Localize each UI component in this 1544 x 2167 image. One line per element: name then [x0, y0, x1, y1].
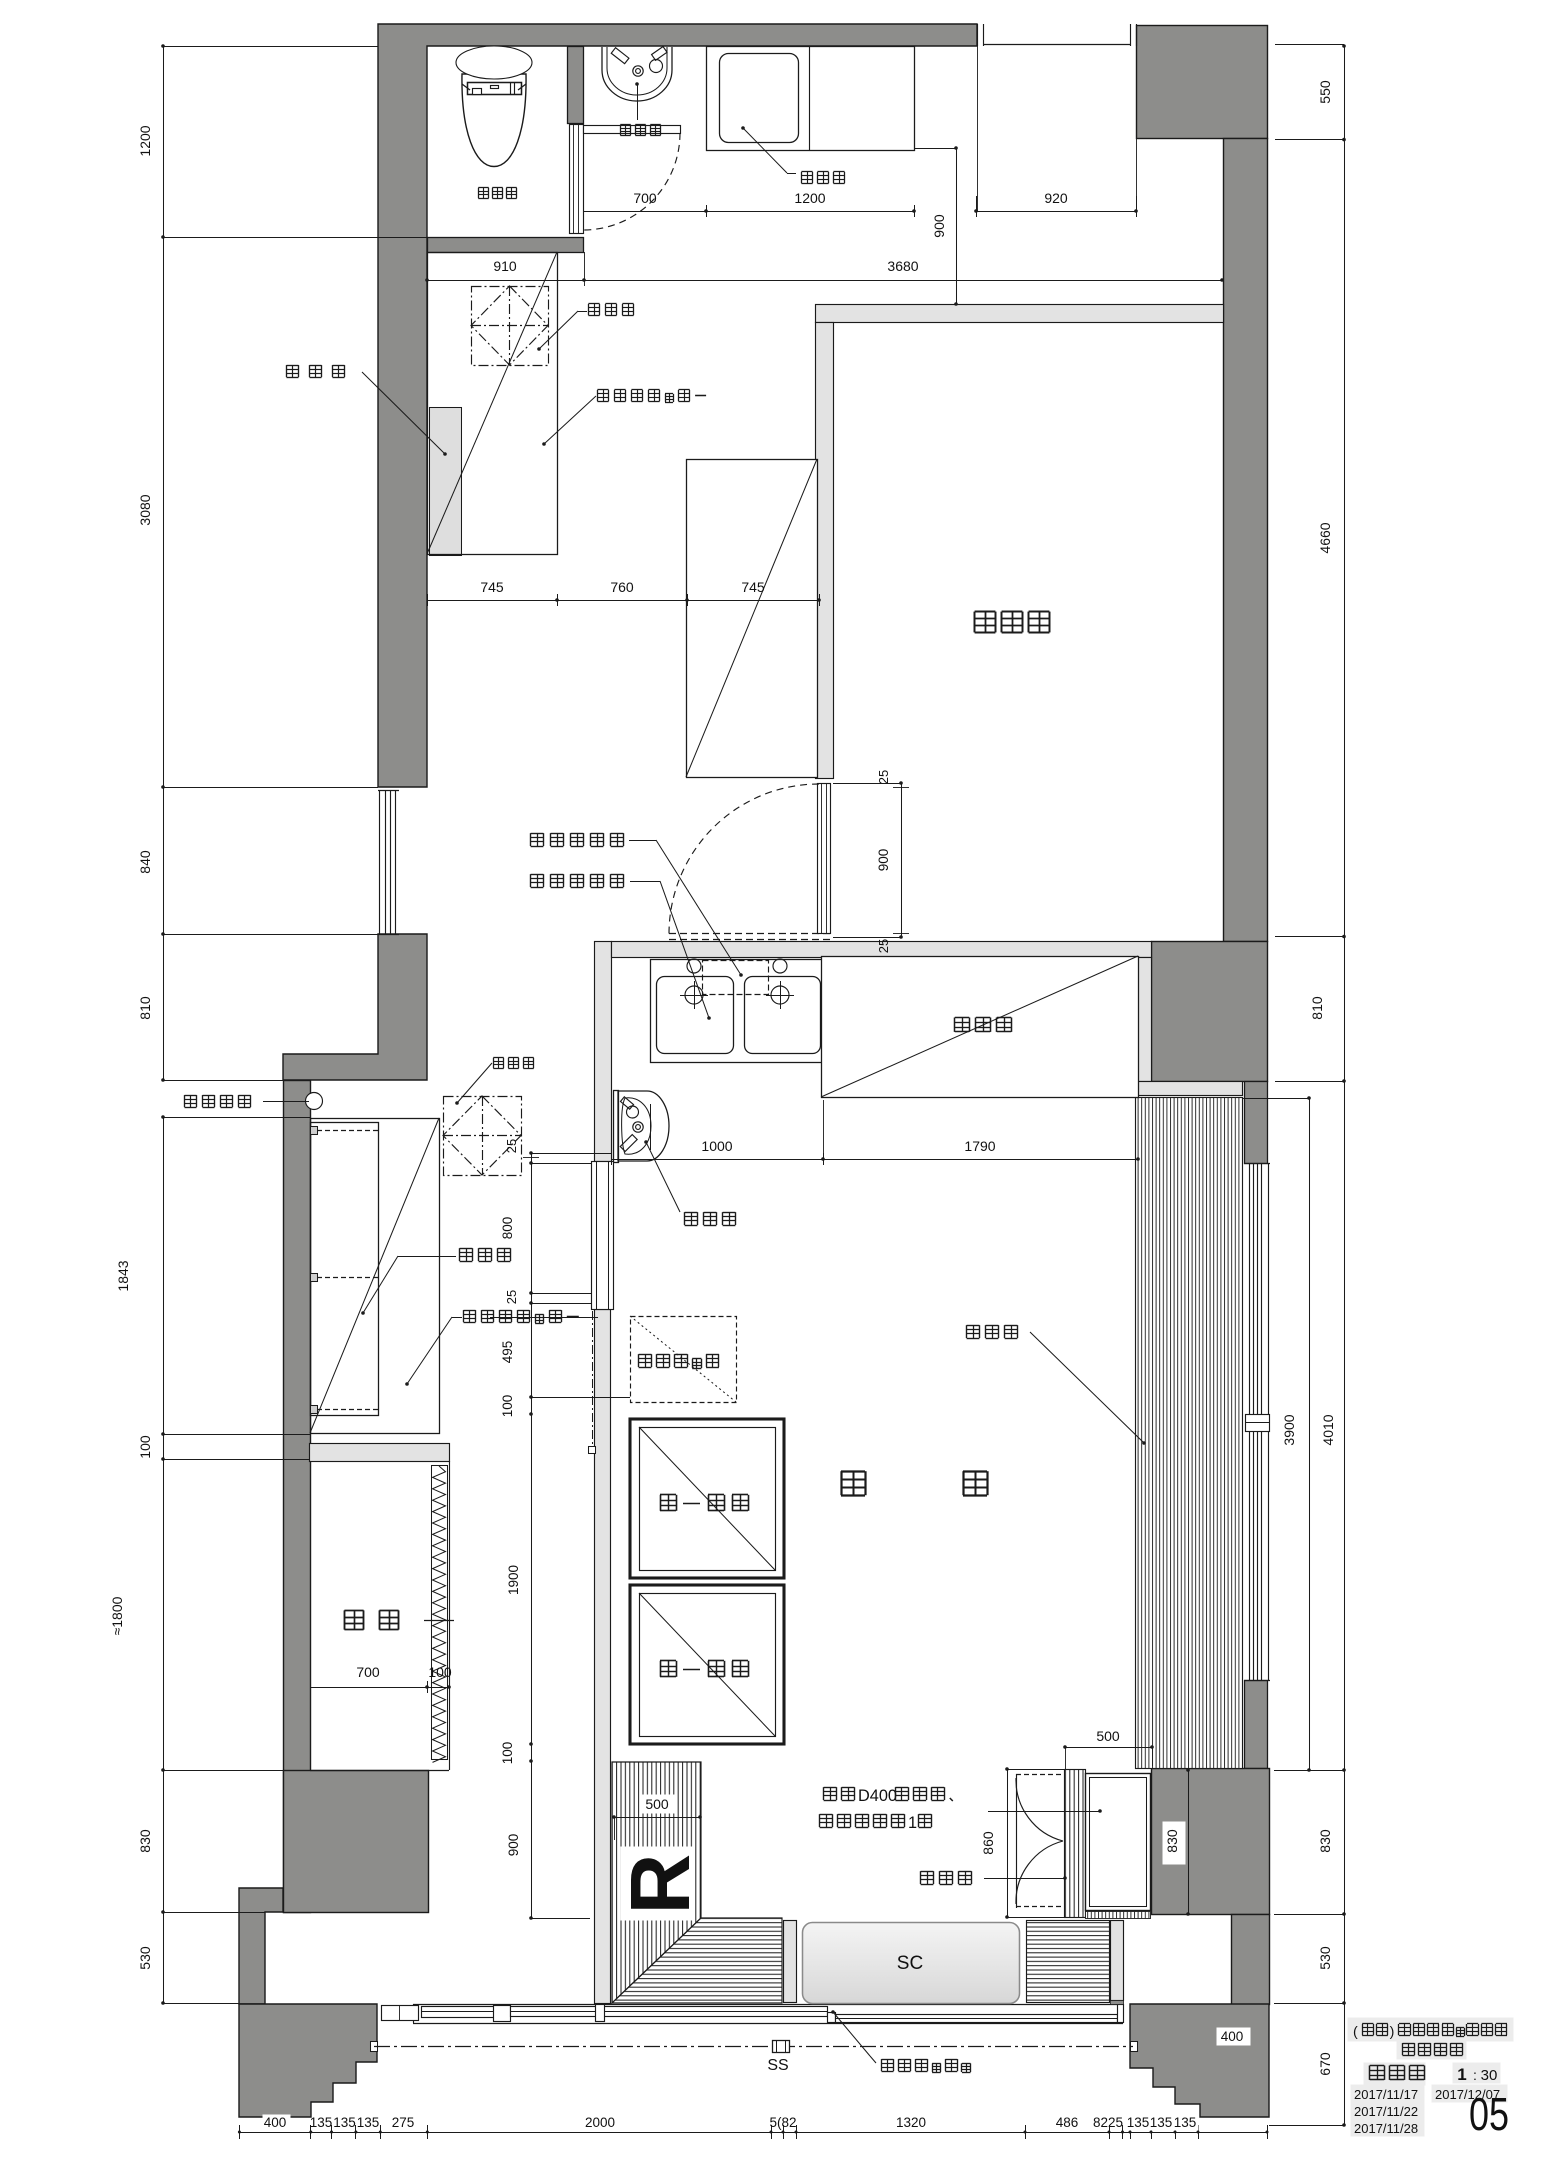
svg-text:1000: 1000	[701, 1138, 732, 1154]
svg-text:135: 135	[1150, 2115, 1173, 2130]
svg-text:135: 135	[310, 2115, 333, 2130]
svg-text:3080: 3080	[137, 494, 153, 525]
svg-text:495: 495	[500, 1341, 515, 1364]
svg-text:135: 135	[333, 2115, 356, 2130]
svg-text:4010: 4010	[1320, 1414, 1336, 1445]
svg-text:30: 30	[1481, 2067, 1498, 2084]
svg-text:SS: SS	[767, 2057, 788, 2074]
svg-text:486: 486	[1056, 2115, 1079, 2130]
svg-text:1200: 1200	[794, 190, 825, 206]
svg-text:745: 745	[480, 579, 504, 595]
svg-text:(: (	[1353, 2024, 1358, 2040]
svg-text:135: 135	[1127, 2115, 1150, 2130]
svg-text:830: 830	[1164, 1829, 1180, 1853]
svg-text:3900: 3900	[1281, 1414, 1297, 1445]
svg-text:R: R	[613, 1854, 707, 1915]
svg-text:D400: D400	[858, 1787, 897, 1805]
svg-text:≈1800: ≈1800	[109, 1596, 125, 1635]
svg-text:840: 840	[137, 850, 153, 874]
svg-text:800: 800	[500, 1217, 515, 1240]
svg-text:1790: 1790	[964, 1138, 995, 1154]
svg-text:25: 25	[504, 1290, 519, 1304]
svg-text:2017/11/28: 2017/11/28	[1354, 2121, 1418, 2136]
svg-text:25: 25	[876, 939, 891, 953]
svg-text:1843: 1843	[115, 1260, 131, 1291]
svg-text:920: 920	[1044, 190, 1068, 206]
svg-text::: :	[1473, 2067, 1477, 2083]
svg-text:830: 830	[1317, 1829, 1333, 1853]
svg-text:2000: 2000	[585, 2115, 615, 2130]
svg-text:100: 100	[137, 1435, 153, 1459]
svg-text:760: 760	[610, 579, 634, 595]
svg-text:900: 900	[931, 214, 947, 238]
svg-text:1: 1	[1457, 2065, 1466, 2084]
svg-text:5(82: 5(82	[769, 2115, 796, 2130]
svg-text:2017/11/22: 2017/11/22	[1354, 2104, 1418, 2119]
svg-text:530: 530	[137, 1946, 153, 1970]
svg-text:745: 745	[741, 579, 765, 595]
svg-text:670: 670	[1317, 2052, 1333, 2076]
svg-text:910: 910	[493, 258, 517, 274]
svg-text:700: 700	[633, 190, 657, 206]
svg-text:500: 500	[645, 1796, 669, 1812]
svg-text:900: 900	[506, 1834, 521, 1857]
svg-text:500: 500	[1096, 1728, 1120, 1744]
svg-text:8225: 8225	[1093, 2115, 1123, 2130]
svg-text:1320: 1320	[896, 2115, 926, 2130]
svg-text:400: 400	[1221, 2029, 1244, 2044]
svg-text:810: 810	[137, 996, 153, 1020]
svg-text:3680: 3680	[887, 258, 918, 274]
svg-text:25: 25	[504, 1139, 519, 1153]
svg-text:1900: 1900	[506, 1565, 521, 1595]
svg-text:810: 810	[1309, 996, 1325, 1020]
svg-text:4660: 4660	[1317, 522, 1333, 553]
svg-text:830: 830	[137, 1829, 153, 1853]
svg-text:1200: 1200	[137, 125, 153, 156]
svg-text:100: 100	[428, 1664, 452, 1680]
svg-text:135: 135	[357, 2115, 380, 2130]
svg-text:2017/11/17: 2017/11/17	[1354, 2087, 1418, 2102]
svg-text:275: 275	[392, 2115, 415, 2130]
svg-text:700: 700	[356, 1664, 380, 1680]
svg-text:550: 550	[1317, 80, 1333, 104]
svg-text:05: 05	[1469, 2088, 1509, 2140]
svg-text:900: 900	[876, 849, 891, 872]
svg-text:): )	[1390, 2024, 1395, 2040]
svg-text:25: 25	[876, 770, 891, 784]
svg-text:1: 1	[908, 1814, 917, 1832]
svg-text:400: 400	[264, 2115, 287, 2130]
svg-text:100: 100	[500, 1395, 515, 1418]
svg-text:SC: SC	[897, 1953, 923, 1974]
svg-text:530: 530	[1317, 1946, 1333, 1970]
svg-text:100: 100	[500, 1742, 515, 1765]
svg-text:135: 135	[1174, 2115, 1197, 2130]
svg-text:860: 860	[980, 1831, 996, 1855]
